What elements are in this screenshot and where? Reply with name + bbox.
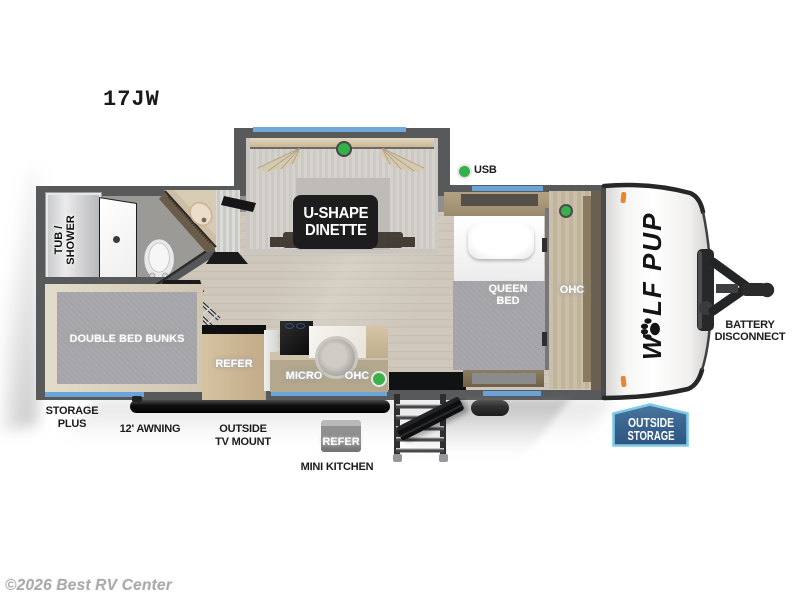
svg-text:W: W bbox=[637, 333, 667, 360]
svg-text:LF PUP: LF PUP bbox=[637, 212, 667, 316]
svg-text:STORAGE: STORAGE bbox=[628, 429, 675, 443]
svg-text:OUTSIDE: OUTSIDE bbox=[628, 416, 674, 430]
